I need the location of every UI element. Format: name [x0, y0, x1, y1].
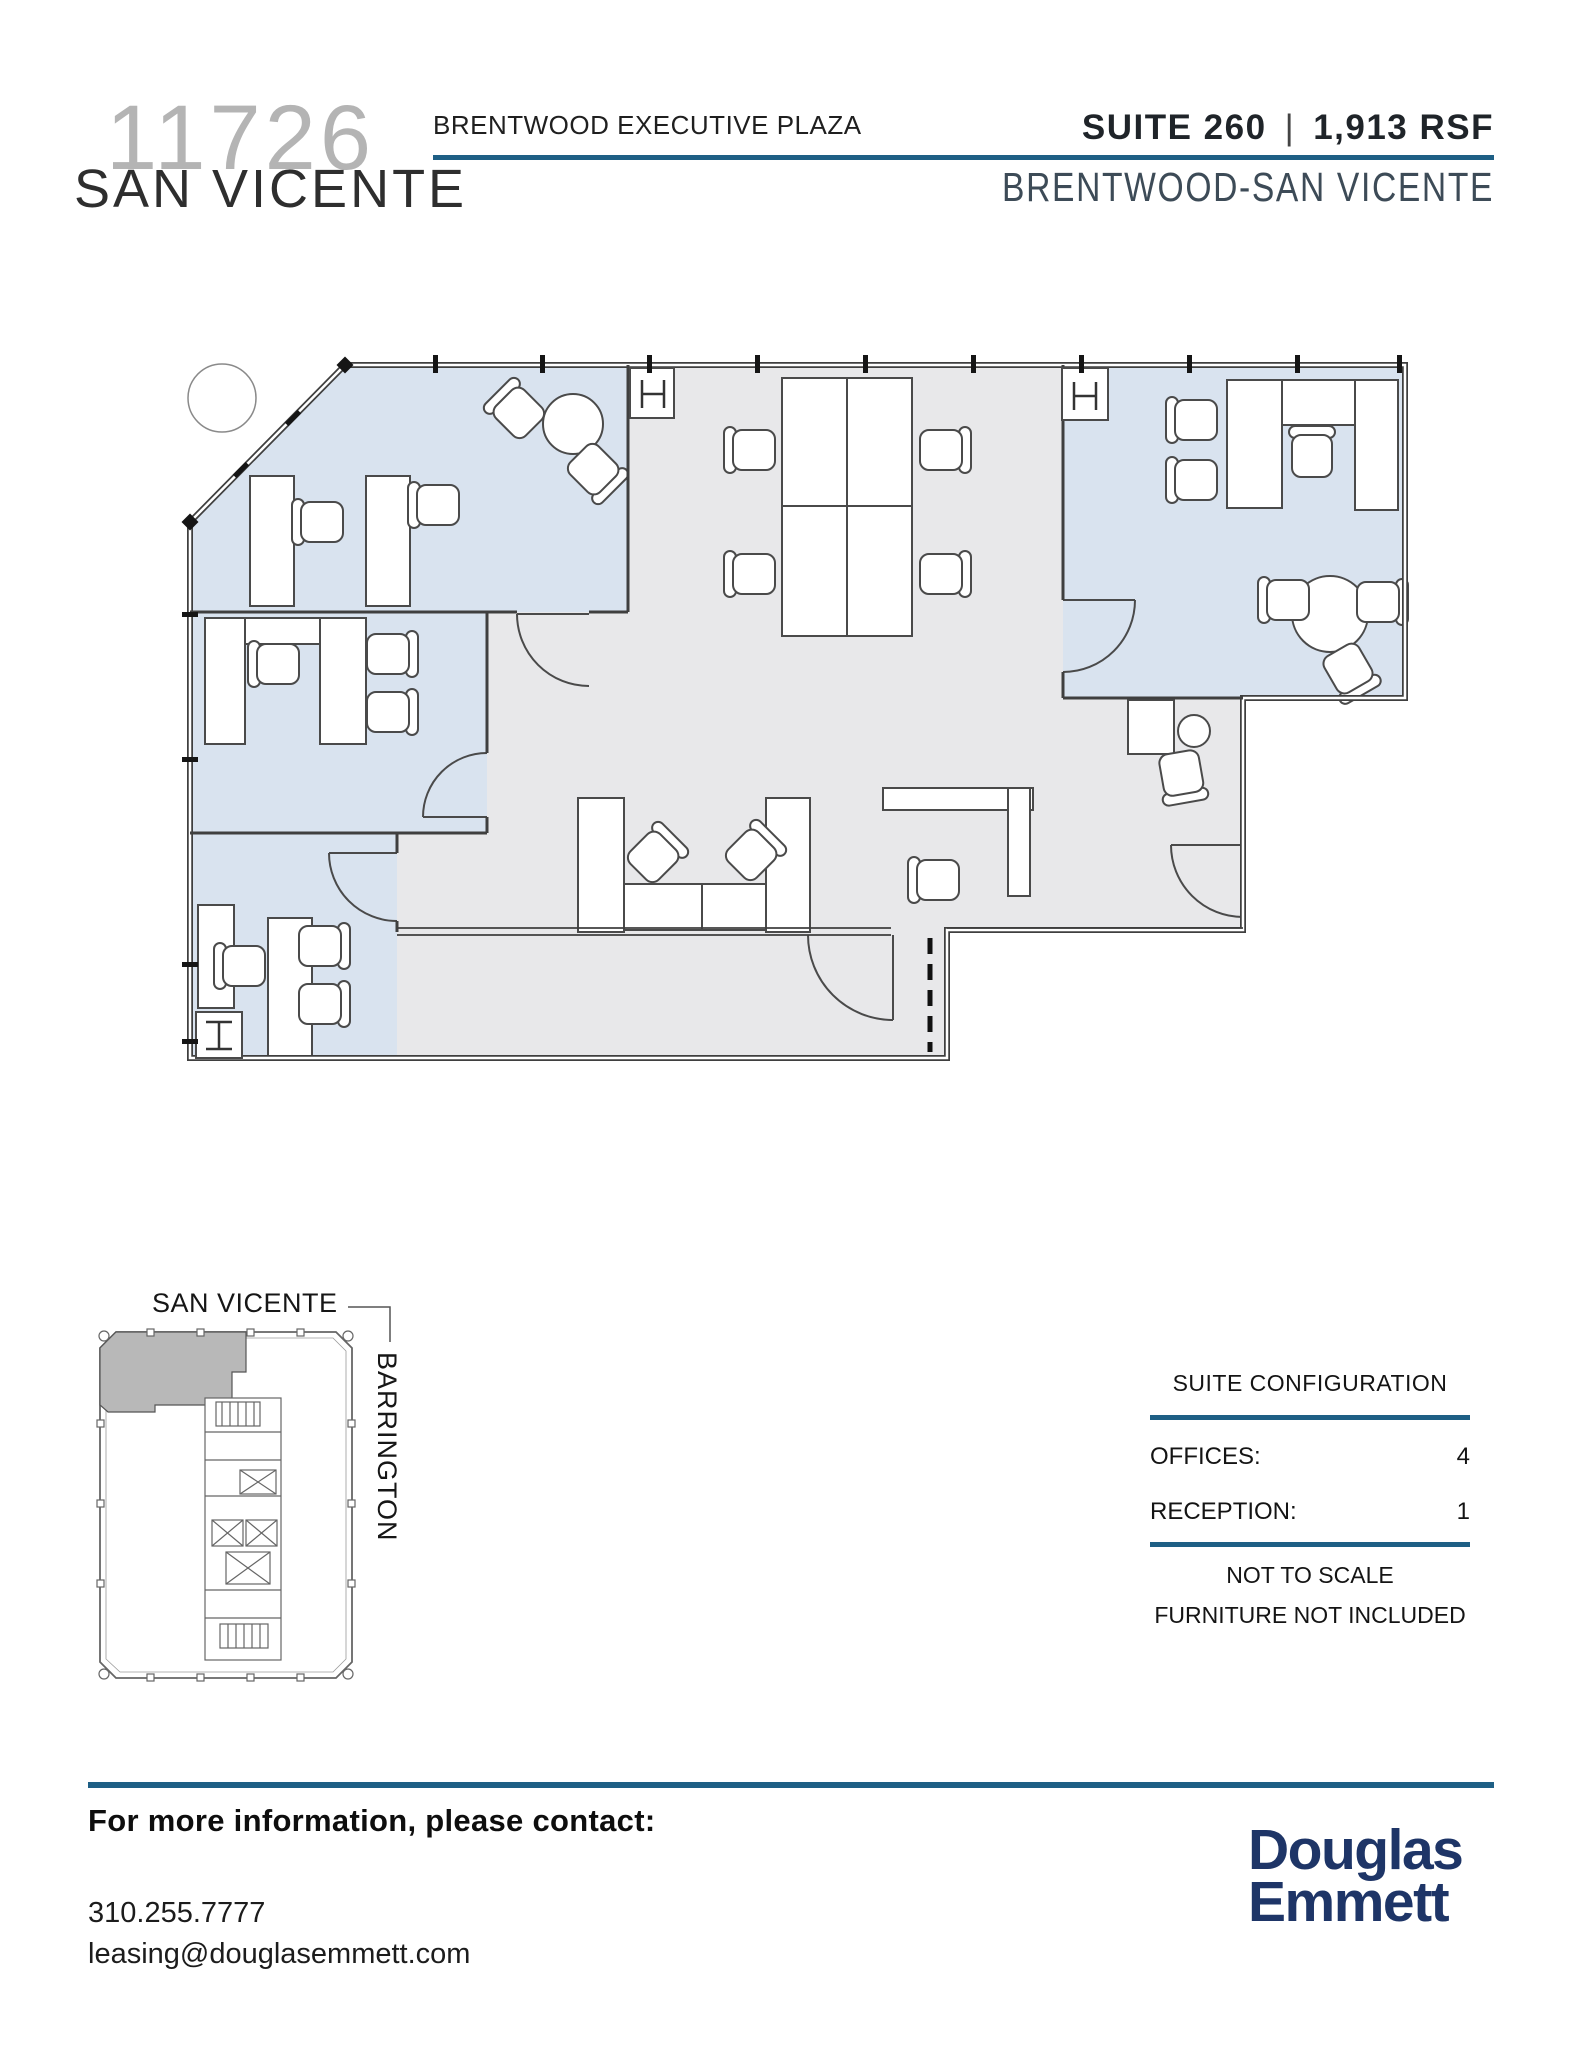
logo-line-1: Douglas [1248, 1824, 1462, 1876]
key-plan [85, 1285, 420, 1695]
desk [366, 476, 410, 606]
desk [1227, 380, 1282, 508]
offices-value: 4 [1457, 1443, 1470, 1471]
config-rule-top [1150, 1415, 1470, 1420]
desk [320, 618, 366, 744]
reception-desk [578, 798, 624, 932]
contact-email: leasing@douglasemmett.com [88, 1938, 470, 1971]
leader-line [348, 1307, 390, 1342]
suite-configuration-panel: SUITE CONFIGURATION OFFICES: 4 RECEPTION… [1150, 1365, 1470, 1645]
leasing-flyer-page: { "header": { "building_number": "11726"… [0, 0, 1583, 2048]
desk-bridge [1282, 380, 1355, 425]
floor-plan [130, 340, 1430, 1080]
note-furniture: FURNITURE NOT INCLUDED [1130, 1602, 1490, 1629]
footer-accent-rule [88, 1782, 1494, 1788]
side-table [1178, 715, 1210, 747]
reception-desk [766, 798, 810, 932]
desk-return [245, 618, 323, 644]
reception-value: 1 [1457, 1498, 1470, 1526]
building-street-name: SAN VICENTE [74, 162, 467, 216]
key-plan-core [205, 1398, 281, 1660]
logo-line-2: Emmett [1248, 1876, 1462, 1928]
contact-phone: 310.255.7777 [88, 1897, 265, 1930]
suite-area-rsf: 1,913 RSF [1313, 108, 1494, 147]
offices-label: OFFICES: [1150, 1443, 1261, 1471]
config-rule-bottom [1150, 1542, 1470, 1547]
reception-desk [624, 884, 702, 930]
header-accent-rule [433, 155, 1494, 160]
desk [250, 476, 294, 606]
suite-configuration-title: SUITE CONFIGURATION [1150, 1370, 1470, 1397]
config-row-reception: RECEPTION: 1 [1150, 1498, 1470, 1526]
desk [205, 618, 245, 744]
desk [1355, 380, 1398, 510]
note-not-to-scale: NOT TO SCALE [1130, 1562, 1490, 1589]
side-desk [1128, 700, 1174, 754]
suite-and-area: SUITE 260|1,913 RSF [1082, 110, 1494, 145]
key-plan-street-barrington: BARRINGTON [373, 1352, 400, 1542]
reception-label: RECEPTION: [1150, 1498, 1297, 1526]
key-plan-street-san-vicente: SAN VICENTE [152, 1290, 338, 1317]
submarket-name: BRENTWOOD-SAN VICENTE [1002, 167, 1494, 208]
douglas-emmett-logo: Douglas Emmett [1248, 1824, 1462, 1929]
suite-number: SUITE 260 [1082, 108, 1267, 147]
building-name: BRENTWOOD EXECUTIVE PLAZA [433, 112, 862, 138]
suite-area-divider: | [1267, 108, 1314, 147]
reception-desk [702, 884, 766, 930]
l-desk [1008, 788, 1030, 896]
landscape-tree [188, 364, 256, 432]
contact-heading: For more information, please contact: [88, 1803, 655, 1839]
config-row-offices: OFFICES: 4 [1150, 1443, 1470, 1471]
